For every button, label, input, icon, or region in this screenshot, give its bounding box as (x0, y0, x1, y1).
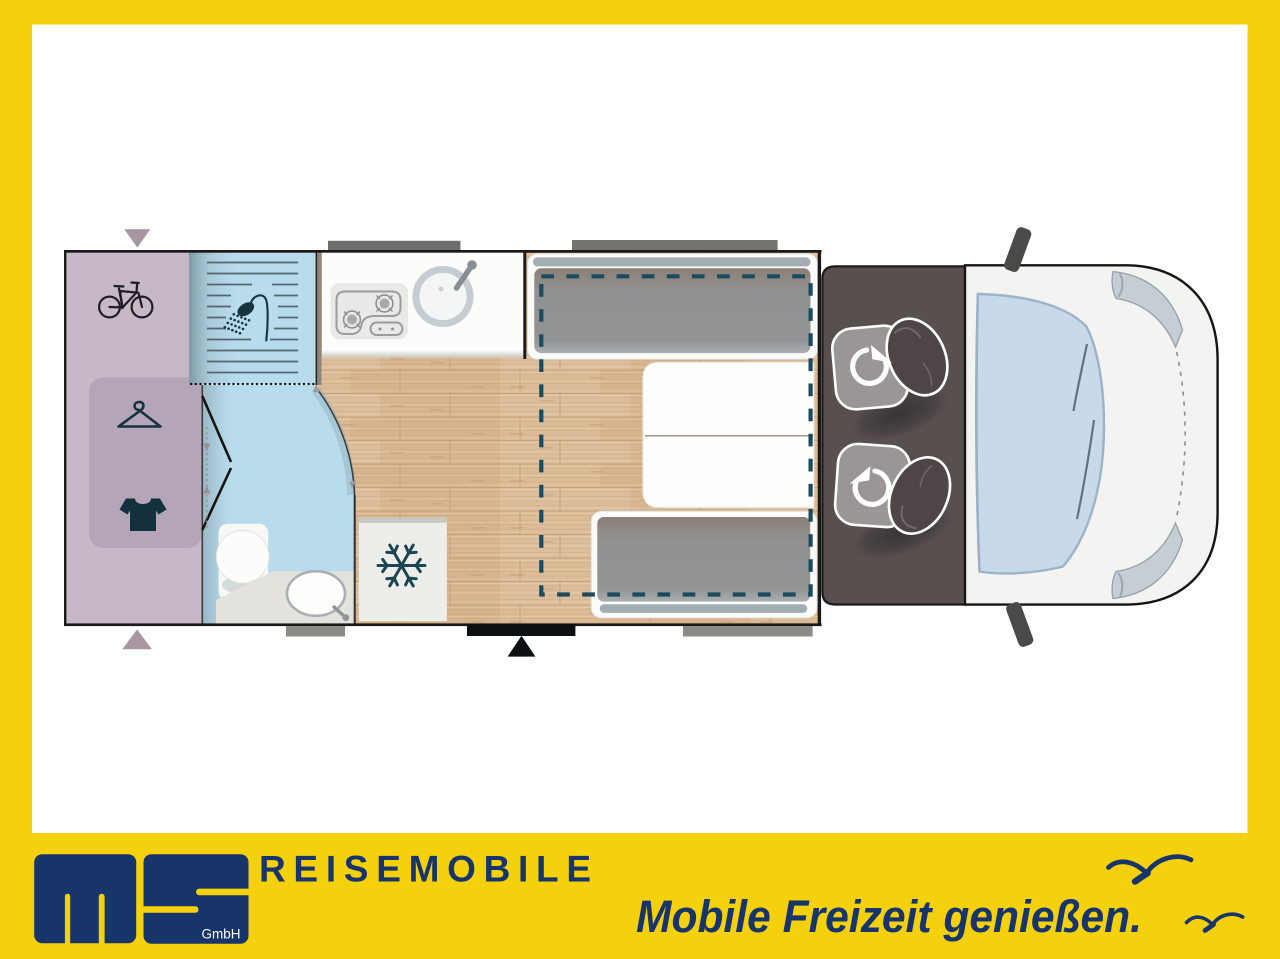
svg-text:Mobile Freizeit genießen.: Mobile Freizeit genießen. (636, 891, 1142, 942)
svg-text:REISEMOBILE: REISEMOBILE (259, 849, 591, 890)
svg-text:GmbH: GmbH (201, 927, 240, 942)
